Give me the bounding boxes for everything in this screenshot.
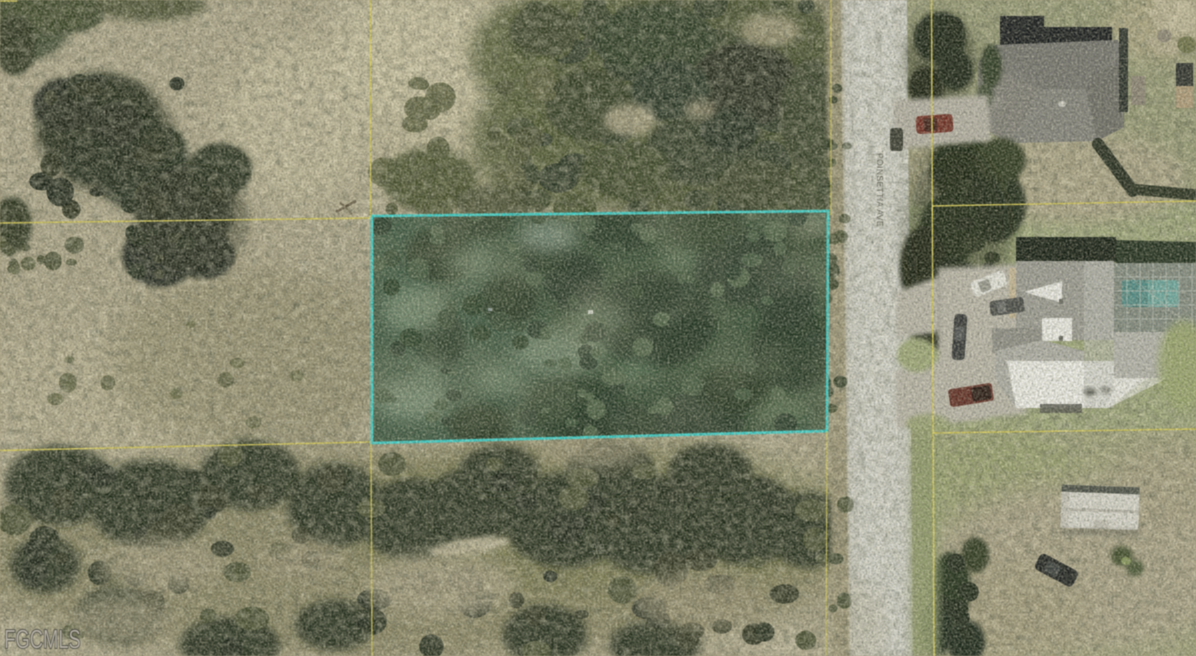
svg-text:FGCMLS: FGCMLS [4, 625, 80, 654]
